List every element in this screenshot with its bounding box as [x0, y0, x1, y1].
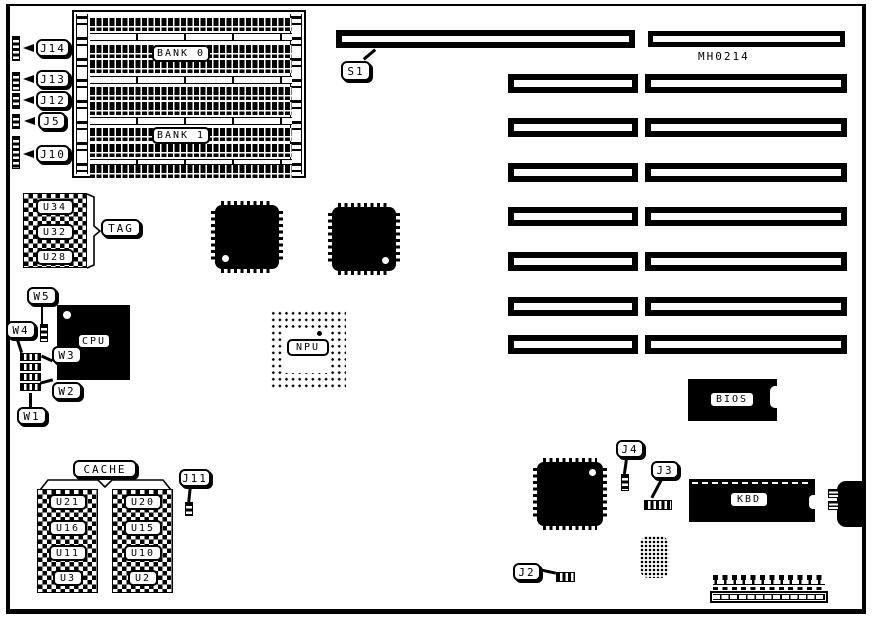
jumper-j2: [556, 572, 575, 582]
qfp-chip-3: [537, 462, 603, 526]
s1-text: S1: [347, 65, 364, 78]
u32-text: U32: [43, 227, 67, 238]
w3-text: W3: [58, 349, 75, 362]
chip-label-u2: U2: [128, 570, 158, 586]
jumper-w-row1: [20, 353, 41, 361]
chip-label-u32: U32: [36, 224, 74, 240]
simm-latch-column-left: [76, 14, 88, 174]
u16-text: U16: [56, 523, 80, 534]
u34-text: U34: [43, 202, 67, 213]
kbd-dashed-line: [692, 482, 812, 484]
chip-label-u28: U28: [36, 249, 74, 265]
callout-tail-j10: [23, 150, 34, 158]
jumper-j14: [12, 36, 20, 61]
expansion-slot-3-right: [645, 118, 847, 137]
qfp3-pins-top: [543, 458, 597, 462]
callout-tail-w5: [41, 305, 43, 324]
power-connector: [710, 574, 828, 603]
j10-text: J10: [40, 148, 66, 161]
simm-socket-row: [90, 87, 292, 100]
kbd-notch: [809, 495, 817, 509]
cache-text: CACHE: [83, 463, 126, 476]
expansion-slot-4-right: [645, 163, 847, 182]
npu-label: NPU: [287, 339, 329, 356]
bios-text: BIOS: [716, 394, 748, 405]
expansion-slot-1-right: [648, 31, 845, 47]
callout-tail-j5: [24, 117, 35, 125]
chip-label-u10: U10: [124, 545, 162, 561]
callout-w2: W2: [52, 382, 82, 400]
qfp2-pins-top: [338, 203, 390, 207]
jumper-j13: [12, 72, 20, 91]
callout-j13: J13: [36, 70, 70, 88]
callout-j5: J5: [38, 112, 66, 130]
u15-text: U15: [131, 523, 155, 534]
simm-socket-block: [72, 10, 306, 178]
callout-j12: J12: [36, 91, 70, 109]
tag-text: TAG: [108, 222, 134, 235]
jumper-j3: [644, 500, 672, 510]
callout-tag: TAG: [101, 219, 141, 237]
callout-w5: W5: [27, 287, 57, 305]
callout-j11: J11: [179, 469, 211, 487]
callout-j14: J14: [36, 39, 70, 57]
kbd-text: KBD: [737, 494, 761, 505]
bios-label: BIOS: [709, 391, 755, 408]
j13-text: J13: [40, 73, 66, 86]
qfp3-pin1-dot: [589, 469, 596, 476]
keyboard-connector: [837, 481, 866, 527]
simm-module-outline-row: [90, 76, 292, 84]
power-pin-stems: [713, 580, 825, 585]
expansion-slot-6-left: [508, 252, 638, 271]
expansion-slot-5-right: [645, 207, 847, 226]
simm-socket-row: [90, 102, 292, 115]
chip-label-u15: U15: [124, 520, 162, 536]
chip-label-u16: U16: [49, 520, 87, 536]
j14-text: J14: [40, 42, 66, 55]
qfp1-pins-bottom: [221, 269, 273, 273]
jumper-j11: [185, 502, 193, 516]
j5-text: J5: [43, 115, 60, 128]
keyboard-connector-pin-2: [828, 501, 839, 510]
u20-text: U20: [131, 497, 155, 508]
expansion-slot-8-right: [645, 335, 847, 354]
u10-text: U10: [131, 548, 155, 559]
callout-tail-j13: [23, 75, 34, 83]
qfp2-pin1-dot: [382, 257, 389, 264]
bank1-label: BANK 1: [152, 127, 210, 144]
expansion-slot-6-right: [645, 252, 847, 271]
bios-notch: [770, 386, 779, 408]
qfp2-pins-bottom: [338, 271, 390, 275]
w1-text: W1: [23, 410, 40, 423]
j2-text: J2: [518, 566, 535, 579]
jumper-w-row2: [20, 363, 41, 371]
power-tray: [710, 591, 828, 603]
simm-socket-row: [90, 18, 292, 31]
j11-text: J11: [182, 472, 208, 485]
board-part-number: MH0214: [698, 50, 750, 63]
expansion-slot-2-left: [508, 74, 638, 93]
j3-text: J3: [656, 464, 673, 477]
power-pin-dashes: [713, 587, 825, 590]
callout-tail-j14: [23, 44, 34, 52]
motherboard-layout-diagram: BANK 0 BANK 1 J14 J13 J12 J5 J10 U34 U32…: [0, 0, 872, 618]
j4-text: J4: [621, 443, 638, 456]
cpu-pin1-dot: [63, 311, 71, 319]
chip-label-u11: U11: [49, 545, 87, 561]
jumper-w-row3: [20, 373, 41, 381]
qfp1-pins-top: [221, 201, 273, 205]
w2-text: W2: [58, 385, 75, 398]
chip-label-u21: U21: [49, 494, 87, 510]
qfp-chip-2: [332, 207, 396, 271]
tag-brace: [86, 193, 102, 269]
callout-w1: W1: [17, 407, 47, 425]
part-number-text: MH0214: [698, 50, 750, 63]
expansion-slot-5-left: [508, 207, 638, 226]
npu-text: NPU: [296, 342, 320, 353]
callout-s1: S1: [341, 61, 371, 81]
qfp2-pins-right: [396, 213, 400, 265]
qfp1-pins-right: [279, 211, 283, 263]
u3-text: U3: [60, 573, 76, 584]
simm-module-outline-row: [90, 33, 292, 41]
expansion-slot-7-right: [645, 297, 847, 316]
callout-tail-j12: [23, 96, 34, 104]
u28-text: U28: [43, 252, 67, 263]
u11-text: U11: [56, 548, 80, 559]
u21-text: U21: [56, 497, 80, 508]
callout-j4: J4: [616, 440, 644, 458]
qfp-chip-1: [215, 205, 279, 269]
crystal-footprint: [640, 536, 669, 578]
power-tray-cells: [713, 594, 825, 600]
qfp3-pins-left: [533, 468, 537, 520]
callout-tail-w1: [29, 393, 32, 407]
qfp1-pins-left: [211, 211, 215, 263]
w5-text: W5: [33, 290, 50, 303]
j12-text: J12: [40, 94, 66, 107]
qfp1-pin1-dot: [222, 255, 229, 262]
jumper-j4: [621, 474, 629, 491]
expansion-slot-3-left: [508, 118, 638, 137]
expansion-slot-8-left: [508, 335, 638, 354]
jumper-j12: [12, 93, 20, 109]
simm-socket-row: [90, 165, 292, 178]
keyboard-connector-pin-1: [828, 489, 839, 498]
callout-w3: W3: [52, 346, 82, 364]
callout-j3: J3: [651, 461, 679, 479]
jumper-w-row4: [20, 383, 41, 391]
expansion-slot-2-right: [645, 74, 847, 93]
callout-j2: J2: [513, 563, 541, 581]
simm-socket-row: [90, 144, 292, 157]
bank0-text: BANK 0: [157, 48, 205, 59]
cpu-label: CPU: [77, 333, 111, 349]
npu-pin1-dot: [317, 331, 322, 336]
jumper-w5: [40, 324, 48, 342]
chip-label-u34: U34: [36, 199, 74, 215]
bank0-label: BANK 0: [152, 45, 210, 62]
jumper-j10: [12, 136, 20, 169]
expansion-slot-4-left: [508, 163, 638, 182]
bank1-text: BANK 1: [157, 130, 205, 141]
callout-j10: J10: [36, 145, 70, 163]
expansion-slot-1-left: [336, 30, 635, 48]
qfp2-pins-left: [328, 213, 332, 265]
simm-module-outline-row: [90, 117, 292, 125]
u2-text: U2: [135, 573, 151, 584]
jumper-j5: [12, 114, 20, 129]
qfp3-pins-bottom: [543, 526, 597, 530]
expansion-slot-7-left: [508, 297, 638, 316]
callout-w4: W4: [6, 321, 36, 339]
cpu-text: CPU: [82, 336, 106, 347]
chip-label-u20: U20: [124, 494, 162, 510]
w4-text: W4: [12, 324, 29, 337]
callout-cache: CACHE: [73, 460, 137, 478]
chip-label-u3: U3: [53, 570, 83, 586]
qfp3-pins-right: [603, 468, 607, 520]
kbd-label: KBD: [729, 491, 769, 508]
